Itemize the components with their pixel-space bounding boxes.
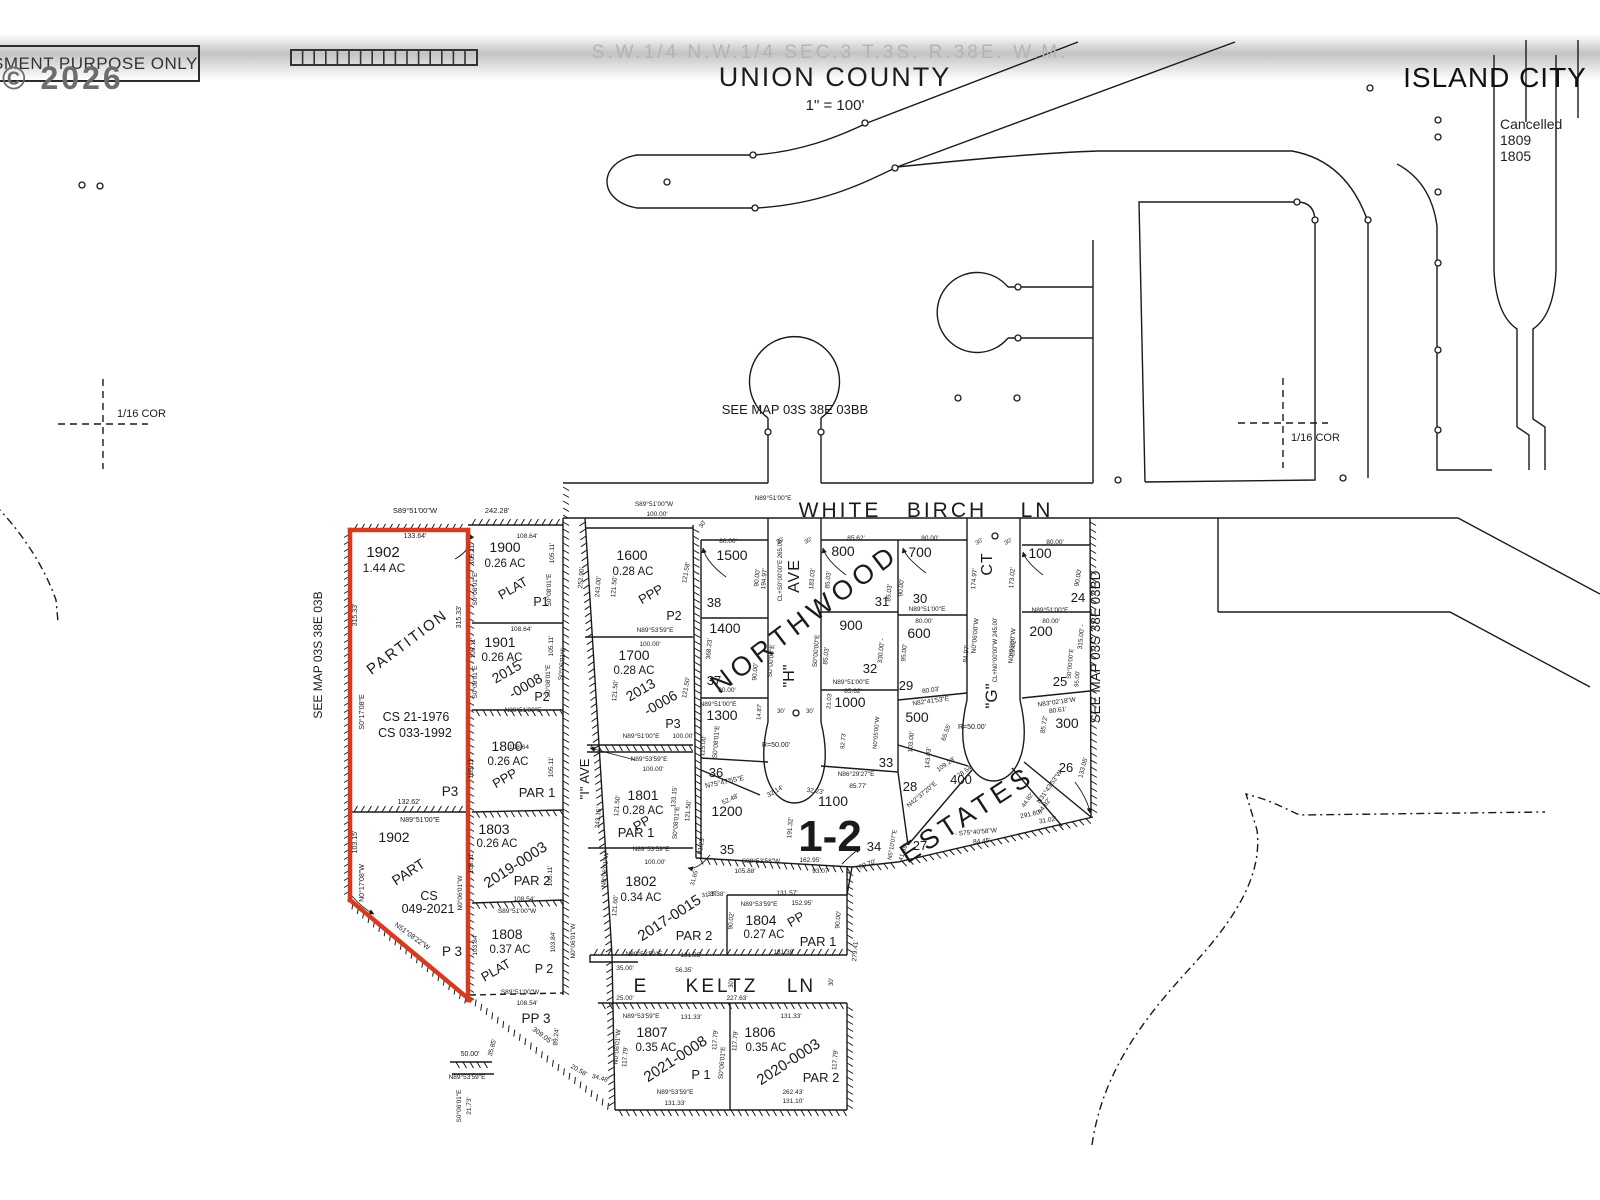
p1b: P 1 — [691, 1067, 710, 1082]
cancelled-list: Cancelled 1809 1805 — [1500, 116, 1562, 164]
dim: 85.03' — [822, 647, 830, 665]
p3c: P3 — [665, 717, 680, 731]
dim: 315.33' — [352, 604, 359, 627]
dim: 131.33' — [680, 1014, 701, 1021]
dim: N0°05'00"W — [873, 716, 882, 749]
dim: 131.57' — [776, 890, 797, 897]
monument-circle — [818, 429, 824, 435]
dim: 131.39' — [773, 949, 794, 956]
map-line — [607, 155, 637, 208]
dim: N0°06'01"W — [599, 851, 610, 887]
dim: N89°53'59"E — [631, 755, 669, 763]
dim: N89°51'00"E — [1032, 606, 1070, 614]
section-caption: S.W.1/4 N.W.1/4 SEC.3 T.3S. R.38E. W.M. — [530, 42, 1130, 64]
monument-circle — [955, 395, 961, 401]
lot-1803-ac: 0.26 AC — [477, 838, 518, 850]
dim: 25.00' — [616, 995, 634, 1002]
dim: 90.00' — [751, 663, 759, 681]
dim: 30' — [975, 538, 985, 547]
dim: 56.35' — [675, 967, 693, 974]
dim: 121.50' — [613, 795, 622, 817]
dim: 103.15' — [352, 831, 359, 854]
dim: 30' — [1004, 538, 1014, 547]
addr-37: 37 — [707, 673, 721, 688]
dim: 91.23' — [697, 837, 707, 855]
dim: 30' — [729, 980, 735, 988]
dim: 90.00' — [1074, 569, 1084, 587]
monument-circle — [97, 183, 103, 189]
dim: 191.32' — [786, 817, 795, 839]
lot-1100: 1100 — [818, 793, 848, 809]
street-e-keltz: KELTZ — [686, 976, 759, 997]
dim: 31.65' — [690, 869, 700, 886]
dim: 80.00' — [1042, 618, 1060, 625]
p3: P3 — [442, 784, 459, 799]
street-h: "H" — [781, 665, 798, 688]
dim: 80.00' — [915, 618, 933, 625]
dim: 80.00' — [1046, 539, 1064, 546]
dim: 121.58' — [681, 562, 692, 584]
lot-400: 400 — [950, 772, 972, 787]
monument-circle — [1365, 217, 1371, 223]
addr-25: 25 — [1053, 674, 1067, 689]
monument-circle — [1340, 475, 1346, 481]
dim: 80.00' — [921, 535, 939, 542]
dim: 90.02' — [727, 912, 735, 930]
dim: 95.00' — [900, 644, 908, 662]
dim: 93.07' — [812, 868, 830, 875]
cs-ref: CS — [420, 889, 437, 903]
cancelled-title: Cancelled — [1500, 116, 1562, 132]
dim: 105.11' — [468, 758, 475, 779]
p2c: P2 — [666, 609, 681, 623]
see-map-b: SEE MAP 03S 38E 03B — [311, 591, 325, 718]
lot-1000: 1000 — [834, 694, 865, 710]
lot-1300: 1300 — [706, 707, 737, 723]
dim: 21.73' — [466, 1097, 473, 1115]
monument-circle — [1435, 189, 1441, 195]
dim: 105.11' — [549, 543, 556, 564]
map-scale: 1" = 100' — [630, 97, 1040, 114]
monument-circle — [1115, 477, 1121, 483]
dim: N89°51'00"E — [505, 706, 543, 714]
dashed-line — [1092, 794, 1545, 1145]
addr-33: 33 — [879, 755, 893, 770]
dim: 85.62' — [847, 535, 865, 542]
street-i-ave: "I" AVE — [577, 758, 592, 799]
lot-1902: 1902 — [366, 544, 399, 561]
monument-circle — [1312, 217, 1318, 223]
lot-300: 300 — [1055, 715, 1079, 731]
map-line — [937, 273, 1008, 353]
dim: 131.33' — [664, 1100, 685, 1107]
street-birch: BIRCH — [907, 499, 987, 522]
dim: 100.00' — [672, 733, 693, 740]
scale-bar — [290, 48, 480, 68]
lot-800: 800 — [831, 543, 855, 559]
monument-circle — [79, 182, 85, 188]
par2b: PAR 2 — [676, 928, 713, 943]
see-map-bd: SEE MAP 03S 38E 03BD — [1088, 570, 1103, 723]
street-e-keltz-e: E — [634, 976, 647, 997]
dim: 309.05' — [531, 1026, 553, 1045]
lot-1200: 1200 — [711, 803, 742, 819]
monument-circle — [1014, 395, 1020, 401]
monument-circle — [1435, 117, 1441, 123]
lot-200: 200 — [1029, 623, 1053, 639]
lot-1808: 1808 — [491, 926, 522, 942]
lot-1802: 1802 — [625, 873, 656, 889]
dim: 227.63' — [726, 995, 747, 1002]
dim: N89°51'00"E — [400, 816, 440, 824]
dim: N89°51'00"E — [909, 605, 947, 613]
lot-1901: 1901 — [484, 634, 515, 650]
lot-1808-ac: 0.37 AC — [490, 944, 531, 956]
dim: 80.03' — [922, 686, 940, 695]
dim: 105.88' — [734, 868, 755, 875]
plat: PLAT — [495, 574, 530, 603]
dim: 31.38' — [701, 891, 718, 900]
dim: 108.64 — [509, 744, 529, 751]
dim: N89°53'59"E — [449, 1073, 487, 1081]
dim: S0°08'01"E — [711, 724, 722, 758]
dim: 242.28' — [485, 506, 510, 515]
dim: 35.85' — [487, 1038, 498, 1057]
dim: 89.24' — [552, 1028, 560, 1046]
addr-24: 24 — [1071, 590, 1085, 605]
dim: CL+N0°00'00"W 245.00' — [993, 618, 999, 683]
monument-circle — [1435, 260, 1441, 266]
dim: S0°06'01"E — [717, 1045, 728, 1079]
leader-arrow — [1075, 782, 1090, 813]
dim: S0°17'08"E — [358, 694, 366, 730]
lot-1807: 1807 — [636, 1024, 667, 1040]
dim: 35.00' — [616, 965, 634, 972]
dashed-line — [0, 505, 58, 622]
cor-right: 1/16 COR — [1291, 432, 1340, 444]
monument-circle — [664, 179, 670, 185]
dim: N89°51'00"E — [833, 678, 871, 686]
dim: S0°00'00"E — [1067, 649, 1076, 680]
dim: 133.64' — [404, 533, 427, 540]
dim: 117.79' — [731, 1030, 740, 1051]
par1b: PAR 1 — [618, 825, 655, 840]
map-labels: WHITEBIRCHLNEKELTZLNNORTHWOODESTATESAVE"… — [117, 402, 1340, 1122]
dim: 131.35' — [680, 952, 701, 959]
cs-ref: 049-2021 — [402, 902, 455, 916]
county-title: UNION COUNTY — [630, 62, 1040, 93]
dim: S0°06'01"E — [455, 1089, 463, 1123]
dim: 30' — [699, 520, 708, 530]
map-line — [693, 525, 696, 858]
dim: S89°53'58"W — [742, 857, 781, 865]
dim: 133.05' — [1077, 757, 1089, 779]
dim: 131.10' — [782, 1098, 803, 1105]
plat: PLAT — [478, 956, 513, 985]
dim: 103.84' — [472, 934, 479, 955]
cs-ref: CS 21-1976 — [383, 710, 450, 724]
dim: 80.61' — [1049, 706, 1067, 715]
dim: 117.79' — [711, 1029, 720, 1050]
map-line — [1139, 202, 1315, 482]
monument-circle — [1435, 347, 1441, 353]
p2b: P 2 — [535, 962, 554, 976]
map-line — [1494, 55, 1517, 427]
highlighted-parcel-outline — [350, 530, 470, 1000]
monument-circle — [1435, 134, 1441, 140]
dim: 90.00' — [897, 579, 905, 597]
cancelled-number: 1809 — [1500, 132, 1562, 148]
street-e-keltz-ln: LN — [787, 976, 815, 997]
dim: N0°06'01"W — [456, 875, 464, 911]
monument-circle — [992, 533, 998, 539]
leader-arrow — [688, 855, 710, 868]
dim: 174.97' — [970, 568, 979, 590]
plat-pp: PP — [784, 908, 807, 930]
dim: 132.62' — [398, 799, 421, 806]
dim: 80.00' — [719, 538, 737, 545]
addr-35: 35 — [720, 842, 734, 857]
dim: 121.60' — [611, 895, 620, 917]
dim: 80.00' — [718, 687, 736, 694]
monument-circle — [1367, 85, 1373, 91]
dim: 20.58' — [569, 1063, 588, 1078]
dim: 131.33' — [780, 1013, 801, 1020]
monument-circle — [765, 429, 771, 435]
dim: R=50.00' — [762, 742, 790, 749]
addr-30: 30 — [913, 591, 927, 606]
dim: 133.15' — [670, 786, 679, 808]
survey-monument-circles — [79, 85, 1441, 716]
dim: 100.00' — [642, 766, 663, 773]
dim: 103.84' — [550, 931, 557, 952]
dim: 279.41' — [851, 940, 860, 962]
plat-map-svg: WHITEBIRCHLNEKELTZLNNORTHWOODESTATESAVE"… — [0, 0, 1600, 1200]
dim: 252.90' — [577, 567, 586, 589]
lot-600: 600 — [907, 625, 931, 641]
dim: 152.95' — [791, 900, 812, 907]
dim: 117.79' — [621, 1046, 630, 1067]
dim: 84.45' — [973, 837, 991, 845]
lot-1804: 1804 — [745, 912, 776, 928]
dim: N89°53'59"E — [623, 1012, 661, 1020]
lot-1500: 1500 — [716, 547, 747, 563]
dim: 30' — [806, 709, 814, 715]
dim: N89°53'59"E — [637, 626, 675, 634]
lot-1902b: 1902 — [378, 829, 409, 845]
dim: S0°08'01"E — [471, 665, 479, 699]
dim: 92.73' — [840, 733, 847, 750]
dim: N89°53'59"E — [657, 1088, 695, 1096]
monument-circle — [752, 205, 758, 211]
dim: 85.62' — [844, 688, 862, 695]
dim: 65.55' — [940, 723, 953, 742]
dim: 85.72' — [1040, 716, 1050, 734]
monument-circle — [1435, 427, 1441, 433]
dim: N0°06'01"W — [569, 923, 577, 959]
dim: 117.79' — [831, 1049, 840, 1070]
dim: 368.23' — [705, 638, 714, 660]
dim: N0°06'00"W — [969, 617, 980, 653]
dim: 105.11' — [547, 866, 554, 887]
monument-circle — [1015, 284, 1021, 290]
dim: 50.00' — [461, 1051, 480, 1058]
partition: PARTITION — [364, 607, 451, 679]
dim: 30' — [777, 709, 785, 715]
dim: S89°51'00"W — [635, 500, 674, 508]
par1: PAR 1 — [519, 785, 556, 800]
plat-map-page: { "header": { "assessment_notice": "SMEN… — [0, 0, 1600, 1200]
dim: 105.11' — [548, 636, 555, 657]
dim: S0°00'00"E — [811, 633, 822, 667]
lot-1902-ac: 1.44 AC — [363, 561, 406, 575]
street-ln: LN — [1021, 499, 1054, 522]
dim: 32.14' — [766, 784, 785, 799]
lot-900: 900 — [839, 617, 863, 633]
lot-500: 500 — [905, 709, 929, 725]
dim: N89°53'59"E — [633, 845, 671, 853]
dim: 121.50' — [684, 800, 693, 822]
dim: 243.00' — [594, 576, 603, 598]
par2c: PAR 2 — [803, 1070, 840, 1085]
dim: 121.50' — [611, 680, 620, 702]
monument-circle — [1015, 335, 1021, 341]
dim: 173.02' — [1008, 567, 1017, 589]
monument-circle — [750, 152, 756, 158]
dim: N86°29'27"E — [838, 770, 876, 778]
monument-circle — [892, 165, 898, 171]
monument-circle — [793, 710, 799, 716]
lot-1806-ac: 0.35 AC — [746, 1042, 787, 1054]
city-title: ISLAND CITY — [1390, 62, 1600, 94]
cancelled-number: 1805 — [1500, 148, 1562, 164]
street-g: "G" — [982, 683, 1001, 708]
part: PART — [389, 855, 428, 888]
addr-32: 32 — [863, 661, 877, 676]
dim: S0°06'01"E — [557, 646, 568, 680]
cs-ref: CS 033-1992 — [378, 726, 452, 740]
lot-1900-ac: 0.26 AC — [485, 558, 526, 570]
plat-ppp: PPP — [490, 765, 520, 791]
dim: 21.03' — [826, 693, 833, 710]
lot-1804-ac: 0.27 AC — [744, 929, 785, 941]
addr-38: 38 — [707, 595, 721, 610]
dim: 243.15' — [594, 807, 603, 829]
dim: R=50.00' — [958, 724, 986, 731]
dim: 108.54' — [513, 896, 534, 903]
see-map-bb: SEE MAP 03S 38E 03BB — [722, 402, 868, 417]
lot-700: 700 — [908, 544, 932, 560]
dim: 30' — [804, 537, 814, 546]
lot-1600: 1600 — [616, 547, 647, 563]
map-line — [1022, 691, 1090, 698]
dim: 30' — [829, 978, 835, 986]
map-line — [1218, 612, 1590, 687]
dim: 121.50' — [610, 576, 619, 598]
map-line — [1397, 164, 1492, 470]
monument-circle — [1294, 199, 1300, 205]
dim: 100.00' — [644, 859, 665, 866]
dim: S89°51'00"W — [393, 506, 438, 515]
plat-ppp: PPP — [636, 581, 666, 607]
addr-27: 27 — [913, 838, 927, 853]
dim: S0°08'01"E — [471, 572, 479, 606]
dim: 105.11' — [469, 544, 476, 565]
dim: 262.43' — [782, 1089, 803, 1096]
dim: N89°53'59"E — [741, 900, 779, 908]
dim: 95.00' — [1074, 671, 1081, 688]
p3b: P 3 — [442, 944, 462, 959]
lot-1400: 1400 — [709, 620, 740, 636]
lot-1806: 1806 — [744, 1024, 775, 1040]
dim: 143.03' — [924, 747, 933, 769]
map-line — [1517, 427, 1529, 470]
dim: 315.33' — [456, 606, 463, 629]
dim: 34.48' — [591, 1073, 610, 1084]
monument-circle — [862, 120, 868, 126]
addr-34: 34 — [867, 839, 881, 854]
par1c: PAR 1 — [800, 934, 837, 949]
dim: CL+S0°00'00"E 265.00' — [778, 539, 784, 602]
dim: N89°51'00"E — [623, 732, 661, 740]
par2: PAR 2 — [514, 873, 551, 888]
dim: S0°08'01"E — [545, 573, 553, 607]
dim: 162.95' — [799, 857, 820, 864]
street-white: WHITE — [799, 499, 882, 522]
lot-1600-ac: 0.28 AC — [613, 566, 654, 578]
dim: 90.00' — [834, 911, 842, 929]
dim: 105.11' — [468, 853, 475, 874]
dim: 31.02' — [1039, 816, 1057, 826]
addr-29: 29 — [899, 678, 913, 693]
dim: 105.11' — [548, 757, 555, 778]
addr-36: 36 — [709, 765, 723, 780]
lot-1800-ac: 0.26 AC — [488, 756, 529, 768]
dim: 121.50' — [681, 677, 692, 699]
map-line — [472, 810, 563, 812]
lot-1801: 1801 — [627, 787, 658, 803]
dim: 330.00' - — [877, 638, 886, 664]
dim: N89°53'59"E — [626, 950, 664, 958]
street-h-ave: AVE — [786, 559, 803, 593]
dim: N89°51'00"E — [755, 494, 793, 502]
dim: N0°17'08"W — [358, 864, 366, 902]
addr-28: 28 — [903, 779, 917, 794]
dim: 115.00' — [699, 735, 708, 756]
dim: S89°51'00"W — [501, 988, 540, 996]
dim: N51°08'22"W — [393, 921, 432, 952]
lot-1802-ac: 0.34 AC — [621, 892, 662, 904]
dim: 108.64' — [510, 626, 531, 633]
lot-1900: 1900 — [489, 539, 520, 555]
pp3: PP 3 — [521, 1011, 550, 1026]
cor-left: 1/16 COR — [117, 408, 166, 420]
lot-100: 100 — [1028, 545, 1052, 561]
dim: 100.00' — [646, 511, 667, 518]
dim: 108.64' — [516, 533, 537, 540]
dim: 183.03' — [808, 568, 817, 590]
addr-31: 31 — [875, 594, 889, 609]
dim: 105.11' — [470, 638, 477, 659]
dim: S0°08'01"E — [544, 664, 552, 698]
dim: 89.02' — [1009, 639, 1017, 657]
lot-1700: 1700 — [618, 647, 649, 663]
lot-1803: 1803 — [478, 821, 509, 837]
block-label: 1-2 — [798, 812, 862, 861]
dim: 108.54' — [516, 1000, 537, 1007]
dim: 315.00' - — [1077, 624, 1086, 650]
street-g-ct: CT — [979, 552, 996, 575]
